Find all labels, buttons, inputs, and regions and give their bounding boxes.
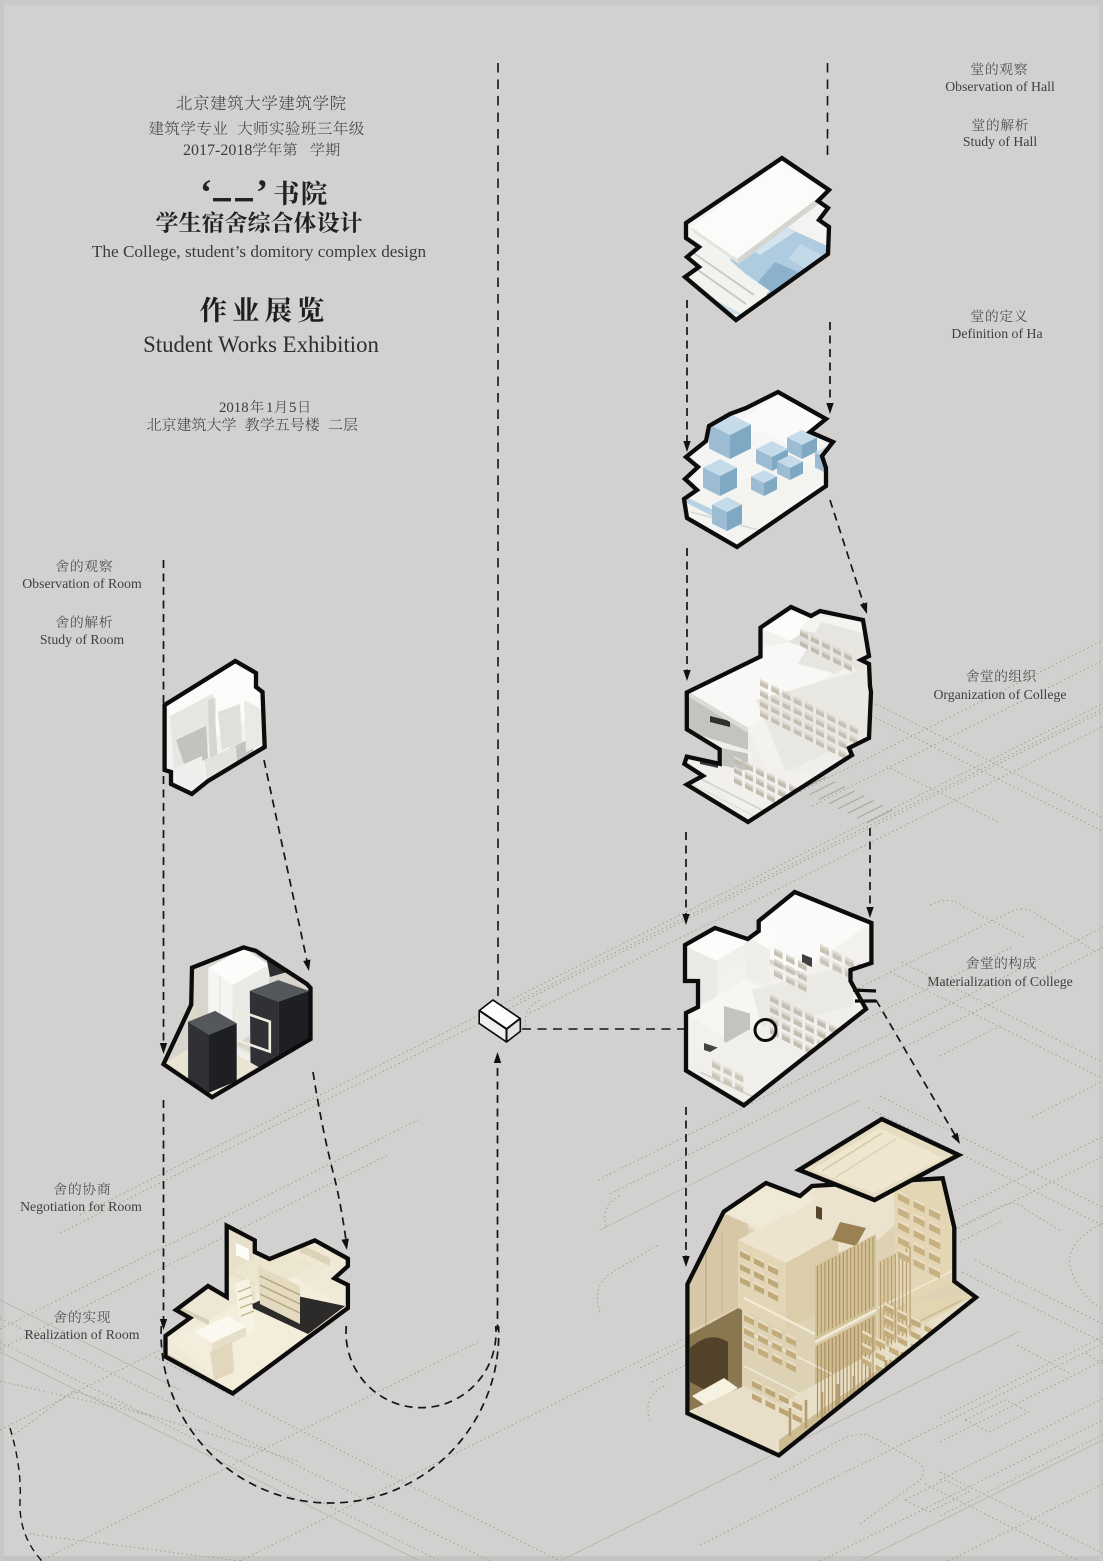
svg-text:Negotiation for Room: Negotiation for Room <box>20 1199 142 1214</box>
svg-text:Materialization of College: Materialization of College <box>927 974 1073 989</box>
svg-text:Student Works Exhibition: Student Works Exhibition <box>143 332 379 357</box>
svg-text:5: 5 <box>289 400 296 416</box>
svg-text:2018: 2018 <box>219 400 249 416</box>
svg-text:Observation of Room: Observation of Room <box>22 576 142 591</box>
svg-text:‘: ‘ <box>200 172 212 212</box>
svg-text:Definition of Ha: Definition of Ha <box>951 326 1042 341</box>
svg-text:Observation of Hall: Observation of Hall <box>945 79 1055 94</box>
svg-text:Study of Room: Study of Room <box>40 632 125 647</box>
svg-text:Realization of Room: Realization of Room <box>25 1327 140 1342</box>
svg-text:’: ’ <box>256 172 268 212</box>
svg-text:Organization of College: Organization of College <box>933 687 1066 702</box>
svg-text:Study of Hall: Study of Hall <box>963 134 1038 149</box>
svg-text:The College, student’s domitor: The College, student’s domitory complex … <box>92 242 427 261</box>
svg-text:1: 1 <box>266 400 273 416</box>
svg-text:2017-2018: 2017-2018 <box>183 142 252 159</box>
